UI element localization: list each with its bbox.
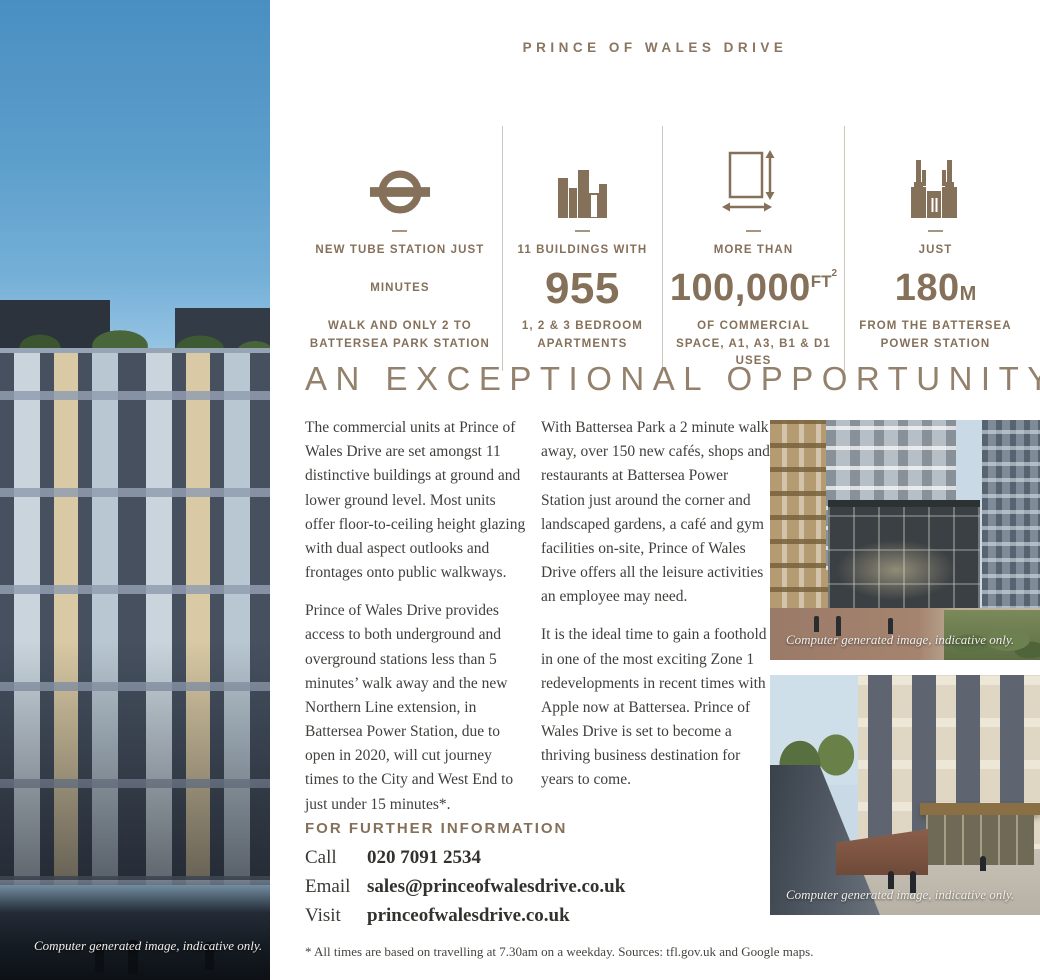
stat-power-station: JUST 180M FROM THE BATTERSEA POWER STATI… xyxy=(844,126,1026,371)
photo-entrance-canopy xyxy=(920,803,1040,815)
street-render-photo: Computer generated image, indicative onl… xyxy=(770,675,1040,915)
stat-line1: 11 BUILDINGS WITH xyxy=(511,242,654,260)
paragraph: It is the ideal time to gain a foothold … xyxy=(541,623,773,792)
photo-shading xyxy=(0,348,270,880)
paragraph: With Battersea Park a 2 minute walk away… xyxy=(541,416,773,609)
stat-line2: MINUTES xyxy=(306,280,494,298)
stat-tube-station: NEW TUBE STATION JUST MINUTES WALK AND O… xyxy=(298,126,502,371)
divider-dash xyxy=(392,230,407,232)
stat-line1: MORE THAN xyxy=(671,242,836,260)
divider-dash xyxy=(575,230,590,232)
photo-tower xyxy=(982,420,1040,626)
contact-section: FOR FURTHER INFORMATION Call 020 7091 25… xyxy=(305,820,625,934)
stat-commercial-space: MORE THAN 100,000FT2 OF COMMERCIAL SPACE… xyxy=(662,126,844,371)
stat-unit: M xyxy=(960,283,977,305)
paragraph: Prince of Wales Drive provides access to… xyxy=(305,599,527,817)
contact-row-visit: Visit princeofwalesdrive.co.uk xyxy=(305,905,625,927)
section-headline: AN EXCEPTIONAL OPPORTUNITY xyxy=(305,360,1025,398)
stat-line1: JUST xyxy=(853,242,1018,260)
tube-roundel-icon xyxy=(306,126,494,218)
photo-caption: Computer generated image, indicative onl… xyxy=(786,632,1014,648)
stat-value: 180M xyxy=(895,267,977,310)
photo-caption: Computer generated image, indicative onl… xyxy=(34,938,262,954)
contact-label: Email xyxy=(305,876,367,898)
photo-interior-light xyxy=(836,540,956,600)
courtyard-render-photo: Computer generated image, indicative onl… xyxy=(770,420,1040,660)
body-column-left: The commercial units at Prince of Wales … xyxy=(305,416,527,831)
contact-label: Visit xyxy=(305,905,367,927)
stat-buildings: 11 BUILDINGS WITH 955 1, 2 & 3 BEDROOM A… xyxy=(502,126,662,371)
stat-line3: WALK AND ONLY 2 TO BATTERSEA PARK STATIO… xyxy=(306,318,494,354)
floorplan-measure-icon xyxy=(671,126,836,218)
stat-value: 955 xyxy=(545,264,620,314)
body-text: The commercial units at Prince of Wales … xyxy=(305,416,773,831)
stat-value: 100,000FT2 xyxy=(670,267,837,310)
left-building-photo: Computer generated image, indicative onl… xyxy=(0,0,270,980)
brochure-page: PRINCE OF WALES DRIVE NEW TUBE STATION J… xyxy=(270,0,1040,980)
contact-heading: FOR FURTHER INFORMATION xyxy=(305,820,625,837)
page-title: PRINCE OF WALES DRIVE xyxy=(270,40,1040,55)
stat-line1: NEW TUBE STATION JUST xyxy=(306,242,494,260)
power-station-icon xyxy=(853,126,1018,218)
stat-line3: FROM THE BATTERSEA POWER STATION xyxy=(853,318,1018,354)
divider-dash xyxy=(746,230,761,232)
photo-pedestrian xyxy=(814,616,819,632)
buildings-icon xyxy=(511,126,654,218)
stats-row: NEW TUBE STATION JUST MINUTES WALK AND O… xyxy=(298,126,1026,371)
paragraph: The commercial units at Prince of Wales … xyxy=(305,416,527,585)
website-url: princeofwalesdrive.co.uk xyxy=(367,905,570,927)
email-address: sales@princeofwalesdrive.co.uk xyxy=(367,876,625,898)
body-column-right: With Battersea Park a 2 minute walk away… xyxy=(541,416,773,831)
footnote: * All times are based on travelling at 7… xyxy=(305,944,813,960)
contact-row-call: Call 020 7091 2534 xyxy=(305,847,625,869)
phone-number: 020 7091 2534 xyxy=(367,847,481,869)
divider-dash xyxy=(928,230,943,232)
stat-unit: FT2 xyxy=(811,272,837,291)
stat-line3: 1, 2 & 3 BEDROOM APARTMENTS xyxy=(511,318,654,354)
contact-row-email: Email sales@princeofwalesdrive.co.uk xyxy=(305,876,625,898)
contact-label: Call xyxy=(305,847,367,869)
photo-pedestrian xyxy=(980,856,986,871)
photo-caption: Computer generated image, indicative onl… xyxy=(786,887,1014,903)
